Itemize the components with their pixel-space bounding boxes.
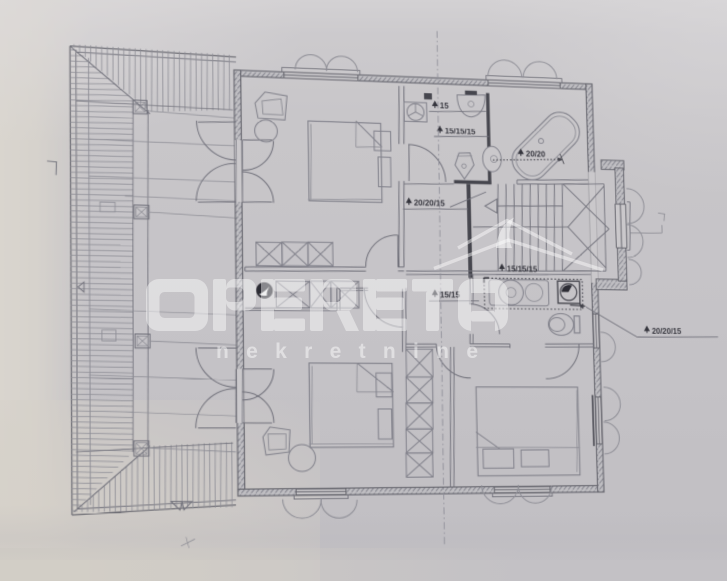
svg-text:nekretnine: nekretnine <box>216 340 494 363</box>
